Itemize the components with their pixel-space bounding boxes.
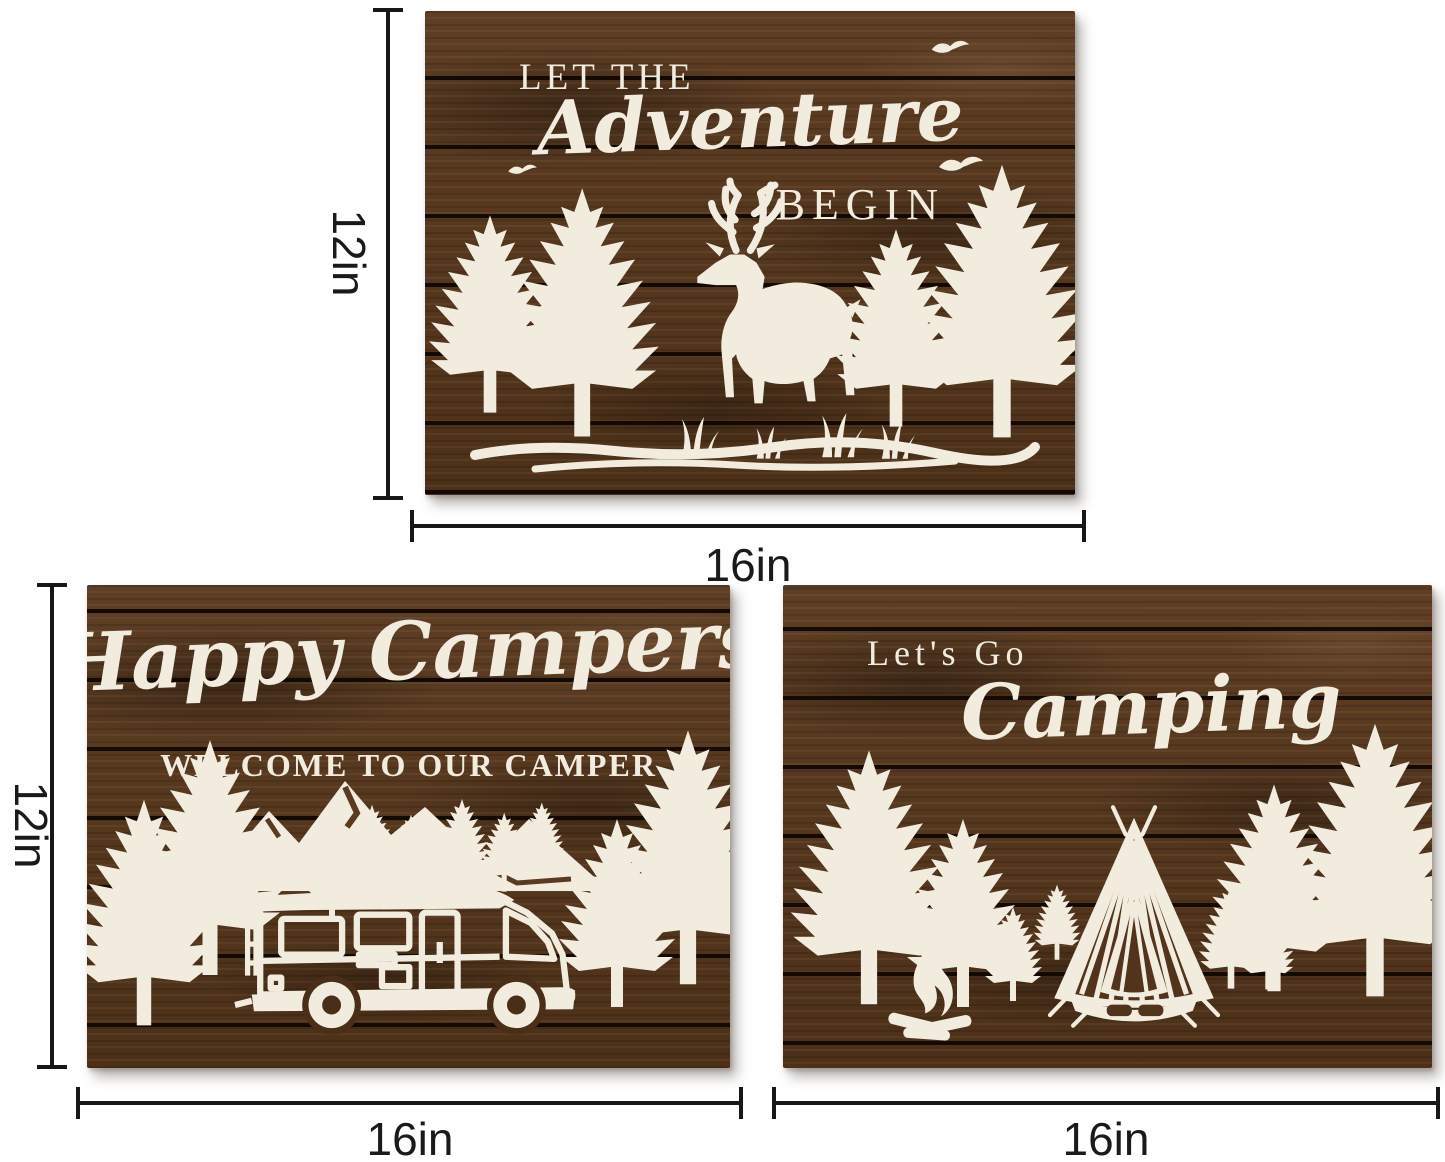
- ground-icon: [475, 442, 1035, 469]
- dim-top-width-label: 16in: [660, 540, 836, 590]
- adventure-line3: BEGIN: [776, 183, 945, 227]
- grass-icon: [882, 423, 915, 459]
- dim-bl-width-label: 16in: [322, 1114, 498, 1162]
- pine-tree-icon: [1034, 885, 1080, 960]
- product-image: LET THE Adventure BEGIN Happy Campers WE…: [0, 0, 1445, 1162]
- happy-campers-headline: Happy Campers: [87, 599, 730, 704]
- dim-top-height-line: [373, 8, 403, 500]
- teepee-tent-icon: [1050, 807, 1218, 1025]
- rv-camper-icon: [235, 869, 575, 1035]
- sign-adventure: LET THE Adventure BEGIN: [425, 11, 1075, 495]
- pine-tree-icon: [506, 188, 659, 436]
- camping-line1: Let's Go: [867, 635, 1028, 671]
- camping-headline: Camping: [960, 662, 1343, 751]
- sign-happy-campers: Happy Campers WELCOME TO OUR CAMPER: [87, 585, 730, 1068]
- sign-lets-go-camping: Let's Go Camping: [783, 585, 1432, 1068]
- pine-tree-icon: [1291, 724, 1432, 997]
- bird-icon: [508, 165, 537, 174]
- dim-top-width-line: [410, 510, 1086, 542]
- bird-icon: [932, 41, 969, 53]
- dim-br-width-label: 16in: [1018, 1114, 1194, 1162]
- adventure-headline: Adventure: [535, 78, 964, 167]
- dim-top-height-label: 12in: [324, 198, 374, 308]
- dim-bl-height-label: 12in: [6, 770, 56, 880]
- happy-campers-subline: WELCOME TO OUR CAMPER: [160, 749, 657, 781]
- grass-icon: [822, 413, 863, 457]
- bird-icon: [939, 157, 983, 171]
